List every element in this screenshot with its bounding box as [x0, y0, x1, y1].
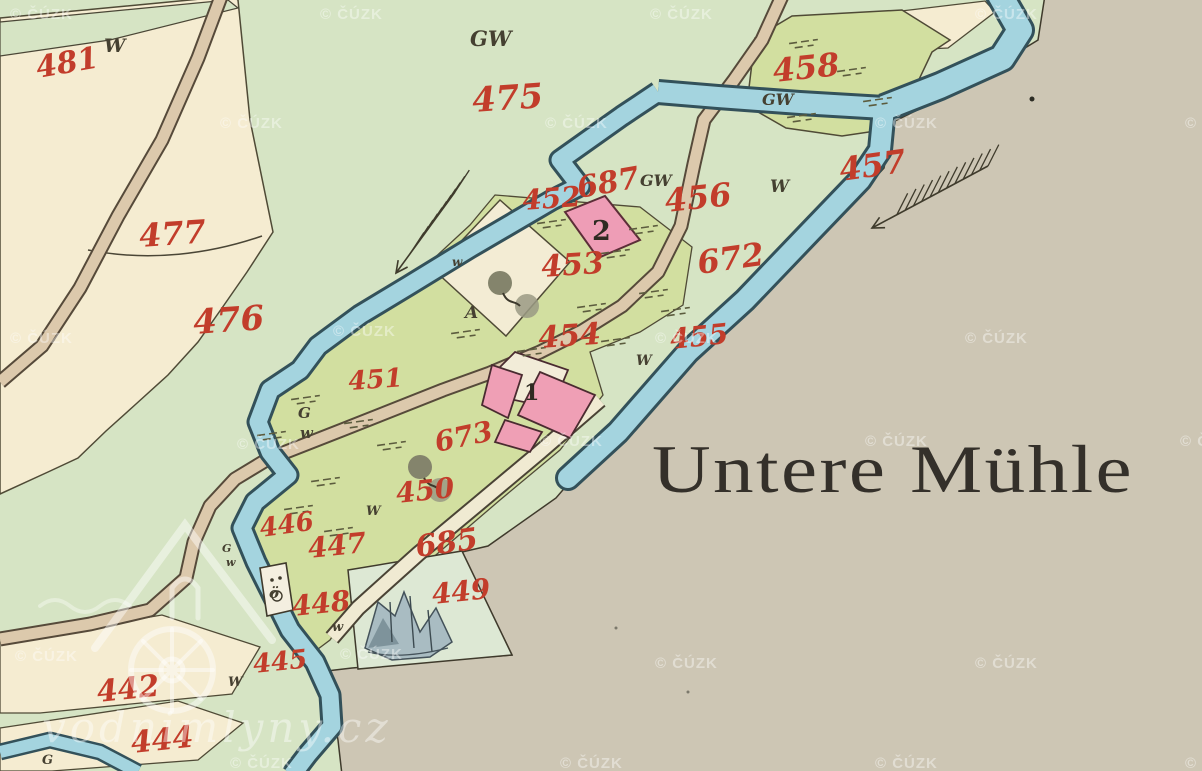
- letter-mark-GW: GW: [762, 90, 796, 109]
- vodnimlyny-watermark-text: vodnimlyny.cz: [42, 703, 392, 752]
- letter-mark-w: w: [332, 620, 344, 635]
- copyright-watermark: © ČÚZK: [237, 435, 300, 453]
- parcel-number-453: 453: [540, 246, 605, 285]
- copyright-watermark: © ČÚZK: [875, 114, 938, 132]
- parcel-number-451: 451: [347, 363, 403, 397]
- letter-mark-W: W: [366, 504, 382, 519]
- parcel-number-447: 447: [306, 526, 368, 565]
- copyright-watermark: © ČÚZK: [220, 114, 283, 132]
- letter-mark-W: W: [636, 353, 653, 369]
- copyright-watermark: © ČÚZK: [865, 432, 928, 450]
- copyright-watermark: © ČÚZK: [230, 754, 293, 771]
- letter-mark-w: w: [226, 556, 236, 569]
- copyright-watermark: © ČÚZK: [10, 329, 73, 347]
- parcel-number-450: 450: [394, 471, 456, 510]
- letter-mark-G: G: [42, 753, 53, 768]
- letter-mark-w: w: [300, 424, 314, 442]
- copyright-watermark: © ČÚZK: [1185, 754, 1202, 771]
- copyright-watermark: © ČÚZK: [655, 654, 718, 672]
- copyright-watermark: © ČÚZK: [965, 329, 1028, 347]
- letter-mark-w: w: [452, 255, 463, 269]
- copyright-watermark: © ČÚZK: [15, 647, 78, 665]
- copyright-watermark: © ČÚZK: [975, 5, 1038, 23]
- parcel-number-476: 476: [192, 298, 266, 343]
- letter-mark-W: W: [770, 177, 791, 197]
- letter-mark-G: G: [298, 404, 311, 422]
- copyright-watermark: © ČÚZK: [340, 645, 403, 663]
- parcel-number-477: 477: [138, 212, 207, 255]
- letter-mark-W: W: [228, 675, 244, 690]
- parcel-number-456: 456: [663, 175, 733, 220]
- copyright-watermark: © ČÚZK: [1185, 114, 1202, 132]
- copyright-watermark: © ČÚZK: [10, 5, 73, 23]
- copyright-watermark: © ČÚZK: [655, 329, 718, 347]
- parcel-number-454: 454: [537, 317, 602, 356]
- copyright-watermark: © ČÚZK: [1180, 432, 1202, 450]
- copyright-watermark: © ČÚZK: [545, 114, 608, 132]
- parcel-number-449: 449: [430, 572, 492, 611]
- copyright-watermark: © ČÚZK: [333, 322, 396, 340]
- parcel-number-452: 452: [521, 180, 582, 217]
- copyright-watermark: © ČÚZK: [320, 5, 383, 23]
- parcel-number-448: 448: [290, 584, 352, 623]
- copyright-watermark: © ČÚZK: [650, 5, 713, 23]
- building-number-2: 2: [592, 216, 611, 247]
- map-canvas: WGWGWWGWwAWGwWGwwWGö 4814774764754584574…: [0, 0, 1202, 771]
- copyright-watermark: © ČÚZK: [975, 654, 1038, 672]
- copyright-watermark: © ČÚZK: [540, 432, 603, 450]
- letter-mark-A: A: [463, 303, 478, 323]
- letter-mark-GW: GW: [470, 26, 514, 51]
- parcel-number-475: 475: [471, 76, 545, 121]
- copyright-watermark: © ČÚZK: [560, 754, 623, 771]
- copyright-watermark: © ČÚZK: [875, 754, 938, 771]
- letter-mark-ö: ö: [269, 584, 279, 602]
- cadastral-map: WGWGWWGWwAWGwWGwwWGö 4814774764754584574…: [0, 0, 1202, 771]
- letter-mark-G: G: [222, 542, 231, 555]
- building-number-1: 1: [524, 380, 539, 406]
- parcel-number-458: 458: [771, 45, 841, 90]
- parcel-number-445: 445: [252, 644, 309, 680]
- letter-mark-W: W: [104, 35, 127, 57]
